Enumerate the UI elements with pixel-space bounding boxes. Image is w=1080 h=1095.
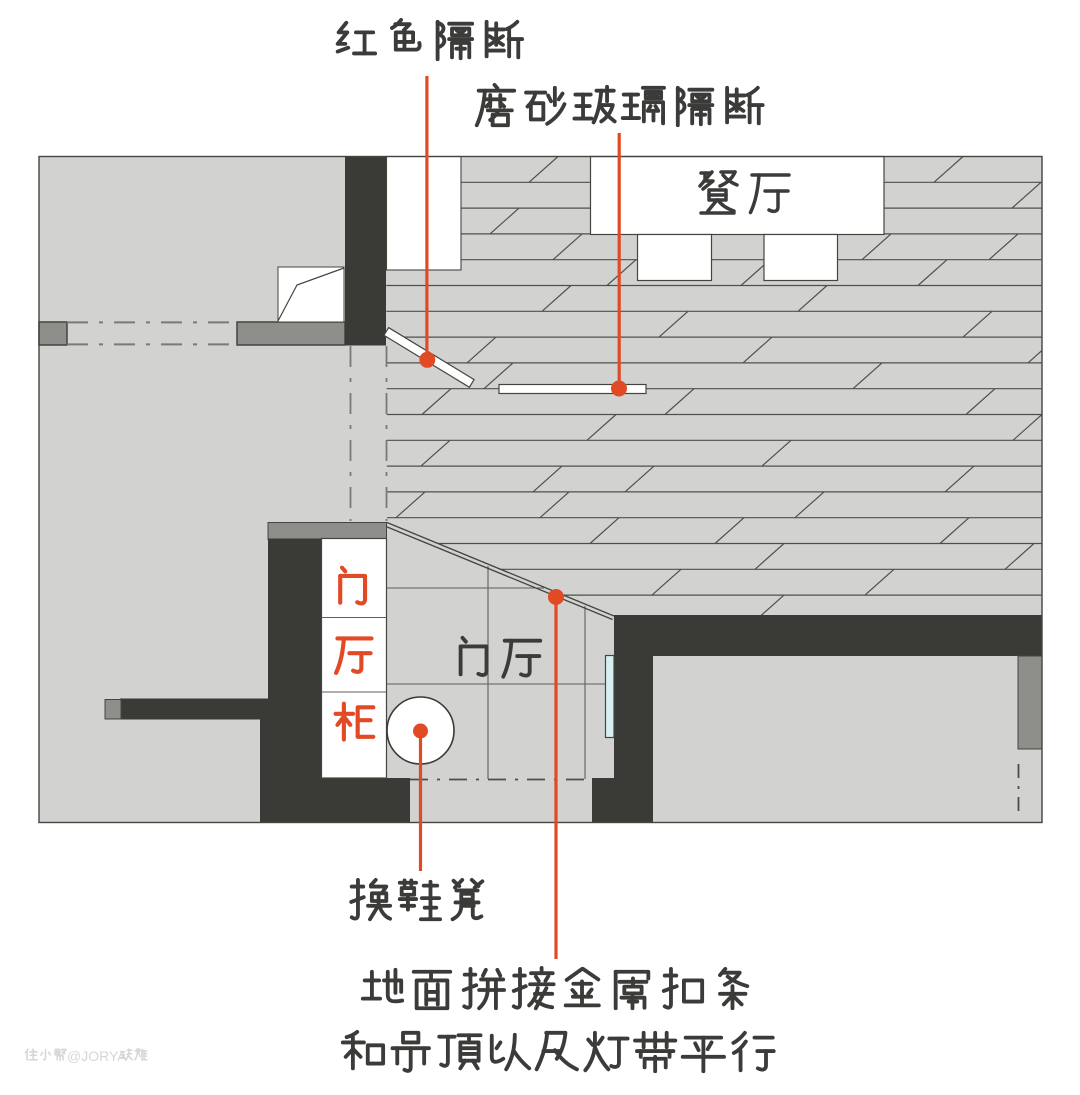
svg-text:@JORYA: @JORYA (67, 1048, 127, 1064)
